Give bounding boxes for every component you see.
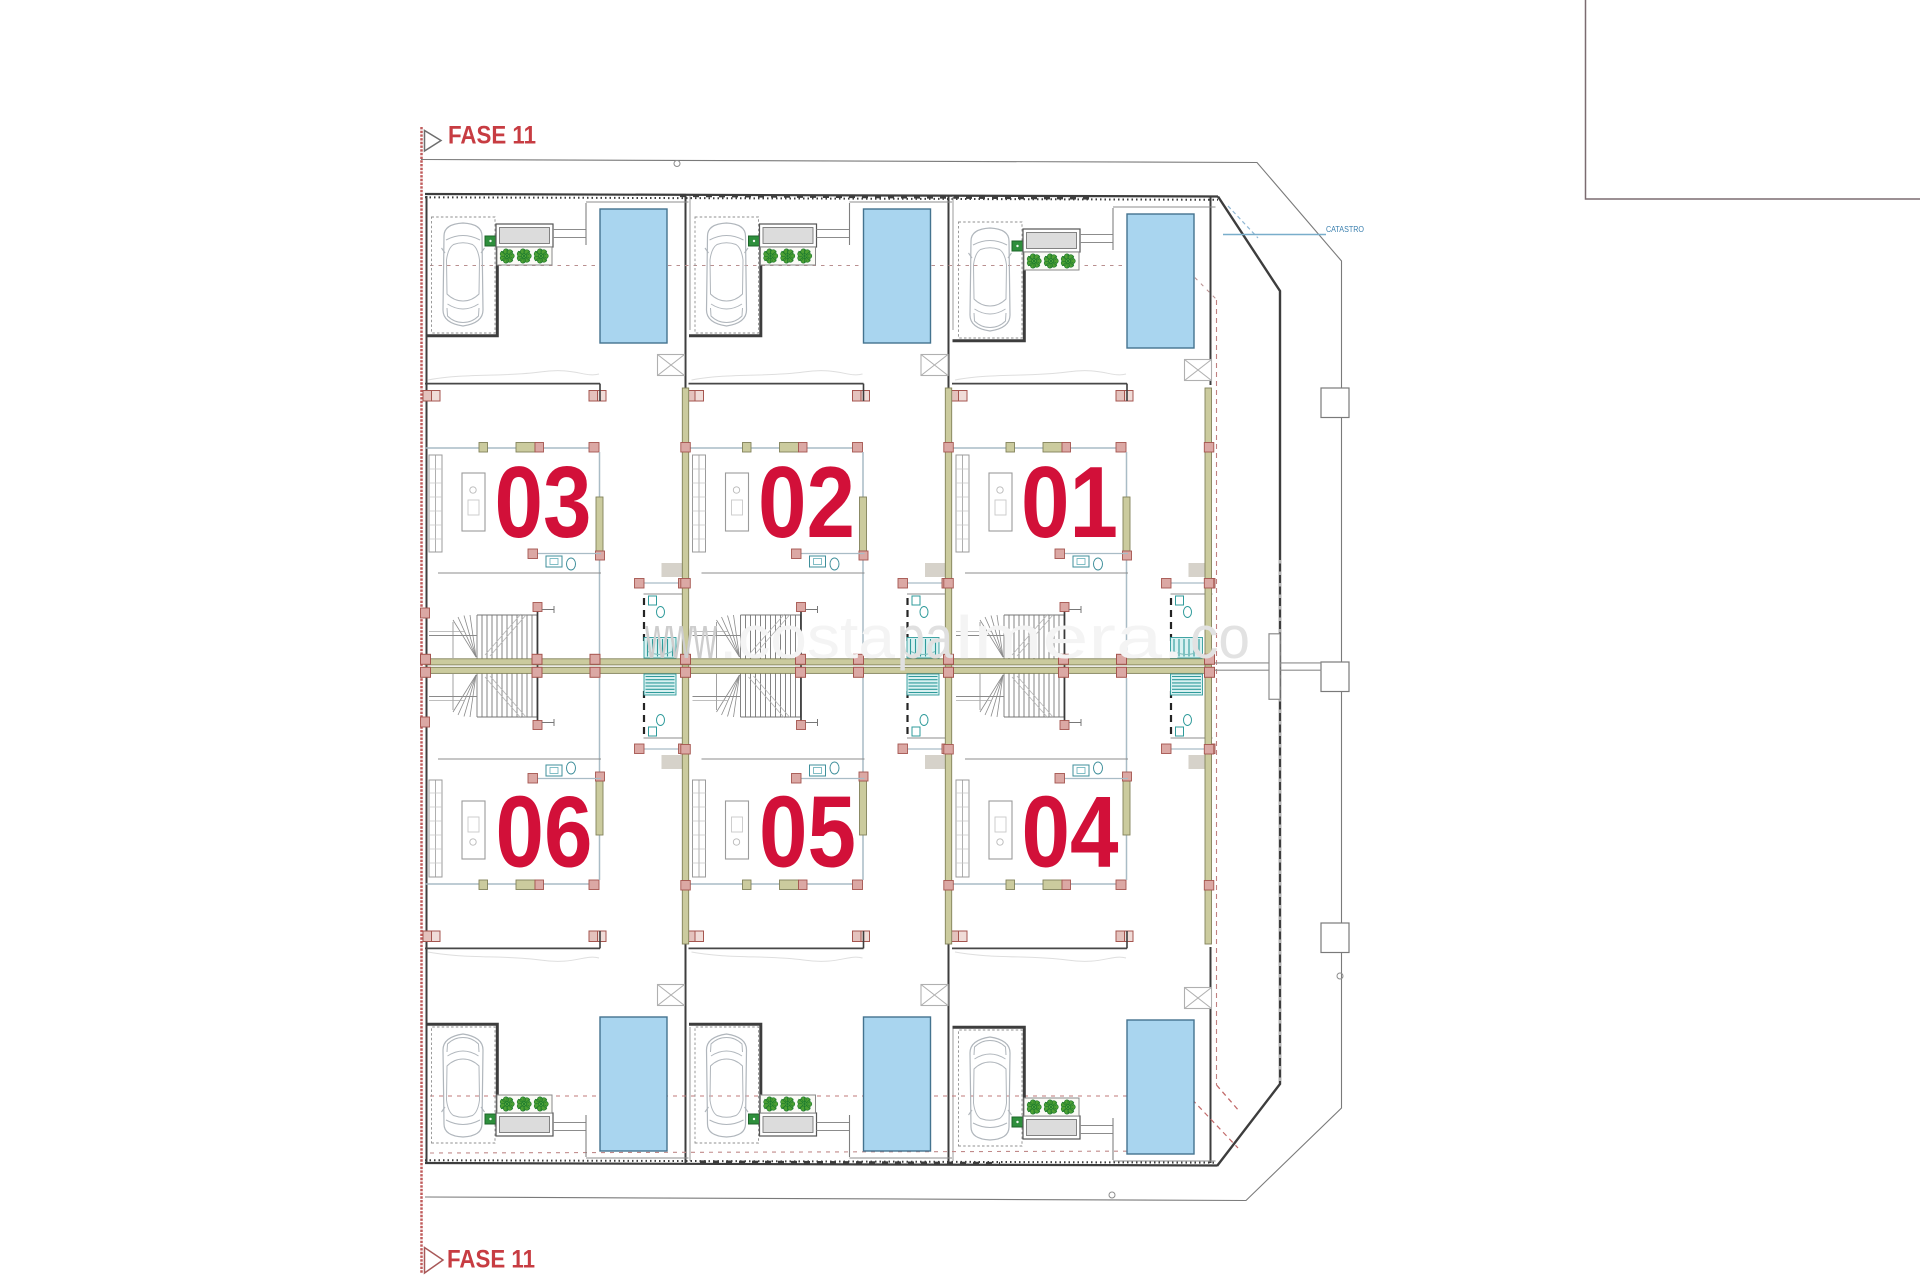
svg-text:FASE 11: FASE 11 [447, 1246, 535, 1274]
svg-text:www: www [644, 604, 717, 671]
svg-text:04: 04 [1022, 777, 1119, 889]
svg-text:FASE 11: FASE 11 [448, 122, 536, 150]
svg-text:co: co [1190, 604, 1250, 671]
svg-text:02: 02 [758, 447, 855, 559]
svg-text:lmera.: lmera. [955, 604, 1185, 671]
svg-text:05: 05 [759, 777, 856, 889]
svg-text:pa: pa [897, 604, 954, 671]
svg-text:06: 06 [496, 777, 593, 889]
svg-text:.costa: .costa [719, 604, 896, 671]
svg-text:03: 03 [495, 447, 592, 559]
svg-text:01: 01 [1021, 447, 1118, 559]
svg-text:CATASTRO: CATASTRO [1326, 225, 1364, 234]
